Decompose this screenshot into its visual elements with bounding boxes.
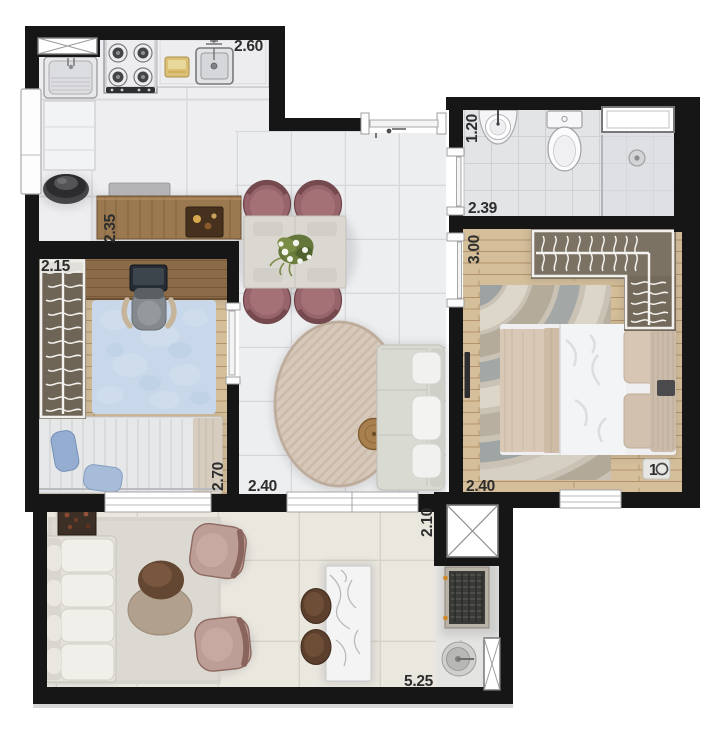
svg-text:1.20: 1.20 bbox=[464, 114, 481, 143]
svg-text:2.60: 2.60 bbox=[234, 38, 263, 55]
svg-text:2.35: 2.35 bbox=[102, 213, 119, 243]
svg-text:2.10: 2.10 bbox=[419, 508, 436, 537]
svg-text:2.39: 2.39 bbox=[468, 200, 498, 217]
svg-text:2.40: 2.40 bbox=[248, 478, 277, 495]
svg-text:3.00: 3.00 bbox=[466, 235, 483, 264]
svg-text:2.40: 2.40 bbox=[466, 478, 495, 495]
svg-text:2.70: 2.70 bbox=[210, 462, 227, 491]
svg-text:5.25: 5.25 bbox=[404, 673, 434, 690]
svg-text:2.15: 2.15 bbox=[41, 258, 71, 275]
